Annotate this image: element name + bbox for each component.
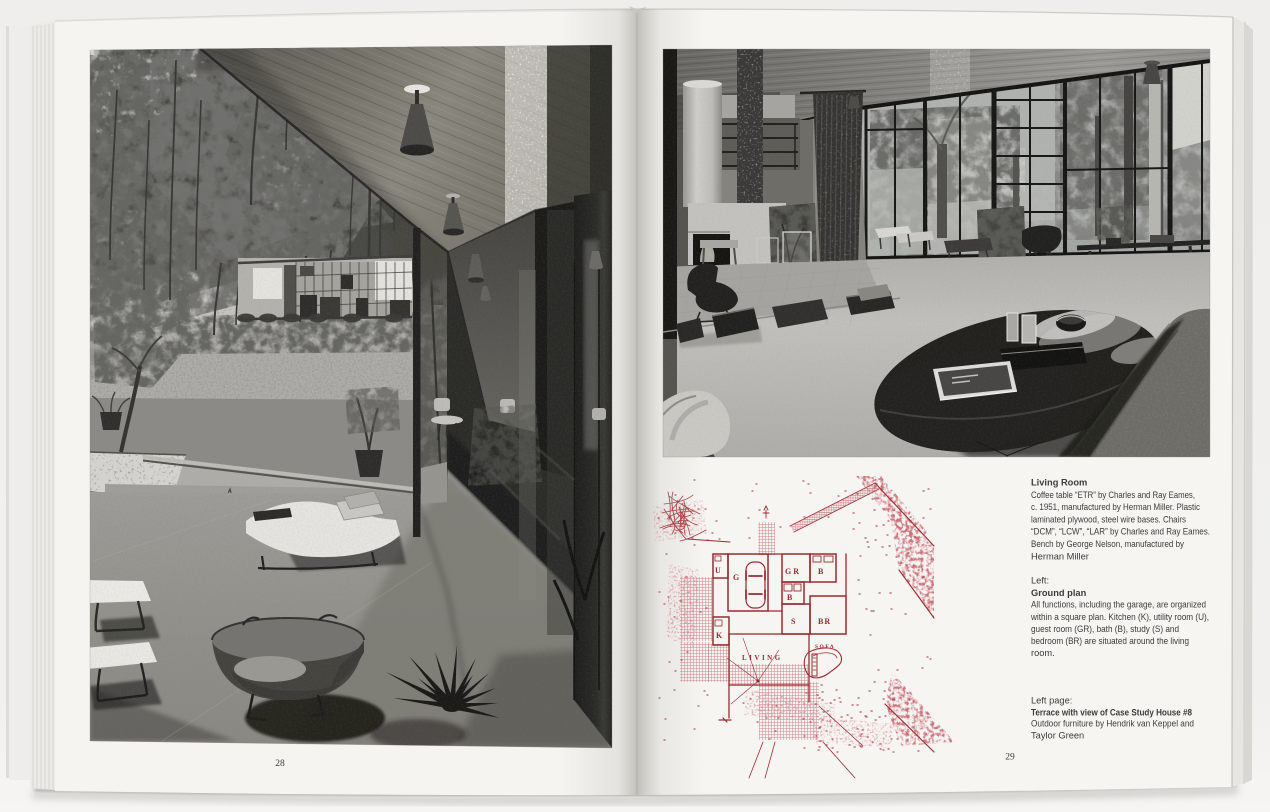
svg-text:Coffee table “ETR” by Charles: Coffee table “ETR” by Charles and Ray Ea… — [1031, 490, 1195, 500]
svg-text:Taylor Green: Taylor Green — [1031, 731, 1084, 741]
svg-text:K: K — [716, 631, 723, 640]
svg-text:BR: BR — [818, 617, 831, 626]
svg-text:Outdoor furniture by Hendrik v: Outdoor furniture by Hendrik van Keppel … — [1031, 718, 1194, 728]
svg-text:SOFA: SOFA — [815, 644, 835, 650]
svg-text:U: U — [715, 566, 721, 575]
svg-text:Ground plan: Ground plan — [1031, 588, 1087, 598]
svg-text:29: 29 — [1005, 753, 1015, 763]
svg-text:All functions, including the g: All functions, including the garage, are… — [1031, 599, 1206, 609]
svg-text:G: G — [733, 573, 739, 582]
svg-text:laminated plywood, steel wire: laminated plywood, steel wire bases. Cha… — [1031, 514, 1186, 524]
svg-text:bedroom (BR) are situated arou: bedroom (BR) are situated around the liv… — [1031, 636, 1189, 646]
svg-text:B: B — [787, 593, 793, 602]
svg-text:Left page:: Left page: — [1031, 696, 1072, 706]
svg-text:Living Room: Living Room — [1031, 478, 1087, 488]
svg-text:within a square plan. Kitchen: within a square plan. Kitchen (K), utili… — [1030, 612, 1209, 622]
svg-text:c. 1951, manufactured by Herma: c. 1951, manufactured by Herman Miller. … — [1031, 502, 1200, 512]
svg-text:GR: GR — [785, 567, 801, 576]
svg-text:room.: room. — [1031, 648, 1055, 658]
svg-text:S: S — [791, 617, 796, 626]
svg-text:LIVING: LIVING — [742, 654, 783, 662]
svg-text:28: 28 — [275, 759, 285, 769]
svg-text:Herman Miller: Herman Miller — [1031, 551, 1089, 561]
svg-text:Bench by George Nelson, manufa: Bench by George Nelson, manufactured by — [1031, 539, 1184, 549]
svg-text:Terrace with view of Case Stud: Terrace with view of Case Study House #8 — [1031, 707, 1192, 717]
svg-text:guest room (GR), bath (B), stu: guest room (GR), bath (B), study (S) and — [1031, 624, 1179, 634]
svg-text:“DCM”, “LCW”, “LAR” by Charles: “DCM”, “LCW”, “LAR” by Charles and Ray E… — [1031, 527, 1210, 537]
svg-text:Left:: Left: — [1031, 576, 1049, 586]
svg-text:B: B — [818, 567, 824, 576]
